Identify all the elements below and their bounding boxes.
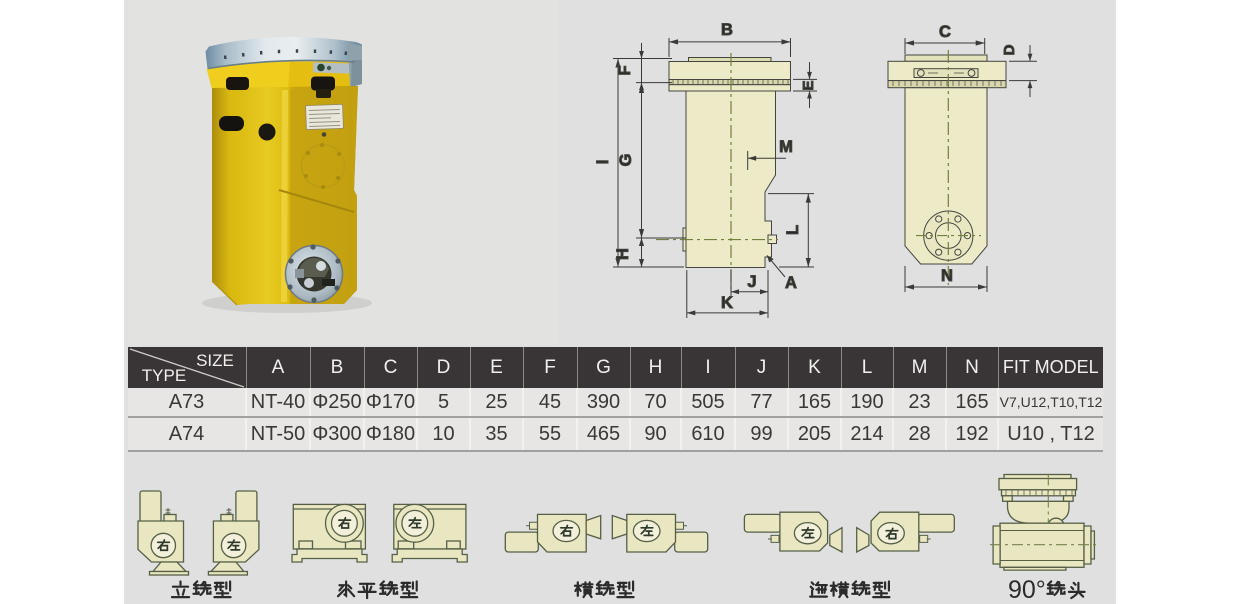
svg-text:N: N xyxy=(941,267,953,285)
svg-text:K: K xyxy=(721,294,733,312)
svg-text:D: D xyxy=(1001,44,1018,55)
svg-text:M: M xyxy=(779,138,793,156)
svg-text:J: J xyxy=(747,273,756,291)
svg-text:F: F xyxy=(616,65,634,75)
svg-text:L: L xyxy=(784,225,802,235)
svg-text:TYPE: TYPE xyxy=(142,366,186,385)
svg-text:SIZE: SIZE xyxy=(196,351,234,370)
svg-text:B: B xyxy=(721,21,733,39)
svg-text:H: H xyxy=(614,248,632,260)
svg-text:A: A xyxy=(785,274,797,292)
svg-text:90°: 90° xyxy=(1008,576,1046,604)
svg-text:G: G xyxy=(617,154,635,167)
svg-text:C: C xyxy=(939,23,951,41)
svg-text:E: E xyxy=(800,80,817,90)
svg-text:I: I xyxy=(594,160,612,165)
